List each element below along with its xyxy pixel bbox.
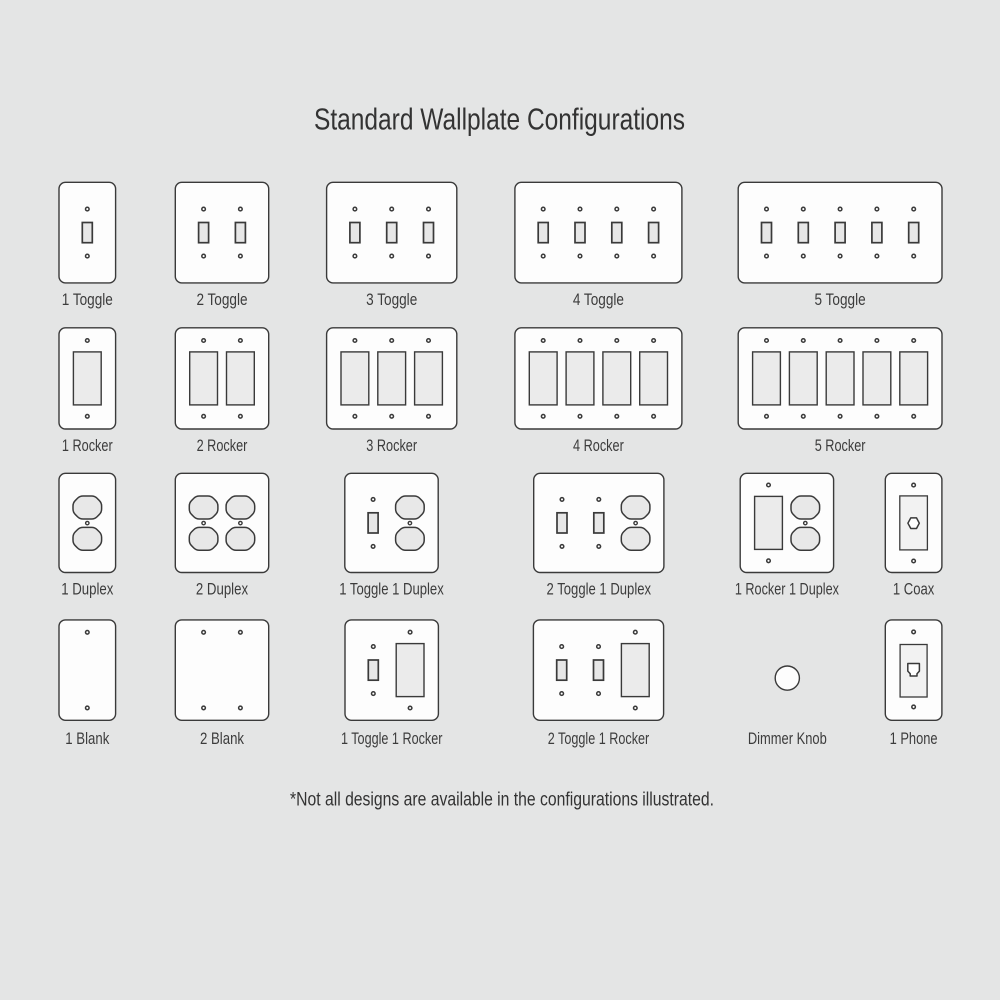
svg-text:1 Blank: 1 Blank: [65, 729, 109, 748]
svg-text:Standard Wallplate Configurati: Standard Wallplate Configurations: [314, 102, 685, 136]
svg-text:5 Rocker: 5 Rocker: [815, 436, 866, 455]
svg-text:5 Toggle: 5 Toggle: [815, 290, 866, 309]
svg-text:3 Rocker: 3 Rocker: [366, 436, 417, 455]
svg-text:2 Toggle 1 Duplex: 2 Toggle 1 Duplex: [547, 580, 652, 599]
svg-text:1 Phone: 1 Phone: [890, 729, 938, 748]
svg-text:2 Blank: 2 Blank: [200, 729, 244, 748]
svg-text:2 Toggle: 2 Toggle: [196, 290, 247, 309]
svg-text:2 Toggle 1 Rocker: 2 Toggle 1 Rocker: [548, 729, 650, 748]
svg-text:Dimmer Knob: Dimmer Knob: [748, 729, 827, 748]
svg-text:4 Toggle: 4 Toggle: [573, 290, 624, 309]
svg-text:1 Coax: 1 Coax: [893, 580, 935, 599]
svg-text:*Not all designs are available: *Not all designs are available in the co…: [290, 789, 714, 811]
svg-text:1 Toggle: 1 Toggle: [62, 290, 113, 309]
svg-text:1 Rocker 1 Duplex: 1 Rocker 1 Duplex: [735, 580, 839, 599]
svg-text:1 Rocker: 1 Rocker: [62, 436, 113, 455]
svg-text:4 Rocker: 4 Rocker: [573, 436, 624, 455]
svg-text:1 Duplex: 1 Duplex: [61, 580, 114, 599]
svg-text:1 Toggle 1 Duplex: 1 Toggle 1 Duplex: [339, 580, 444, 599]
svg-text:1 Toggle 1 Rocker: 1 Toggle 1 Rocker: [341, 729, 443, 748]
svg-text:2 Duplex: 2 Duplex: [196, 580, 249, 599]
svg-text:3 Toggle: 3 Toggle: [366, 290, 417, 309]
svg-text:2 Rocker: 2 Rocker: [197, 436, 248, 455]
